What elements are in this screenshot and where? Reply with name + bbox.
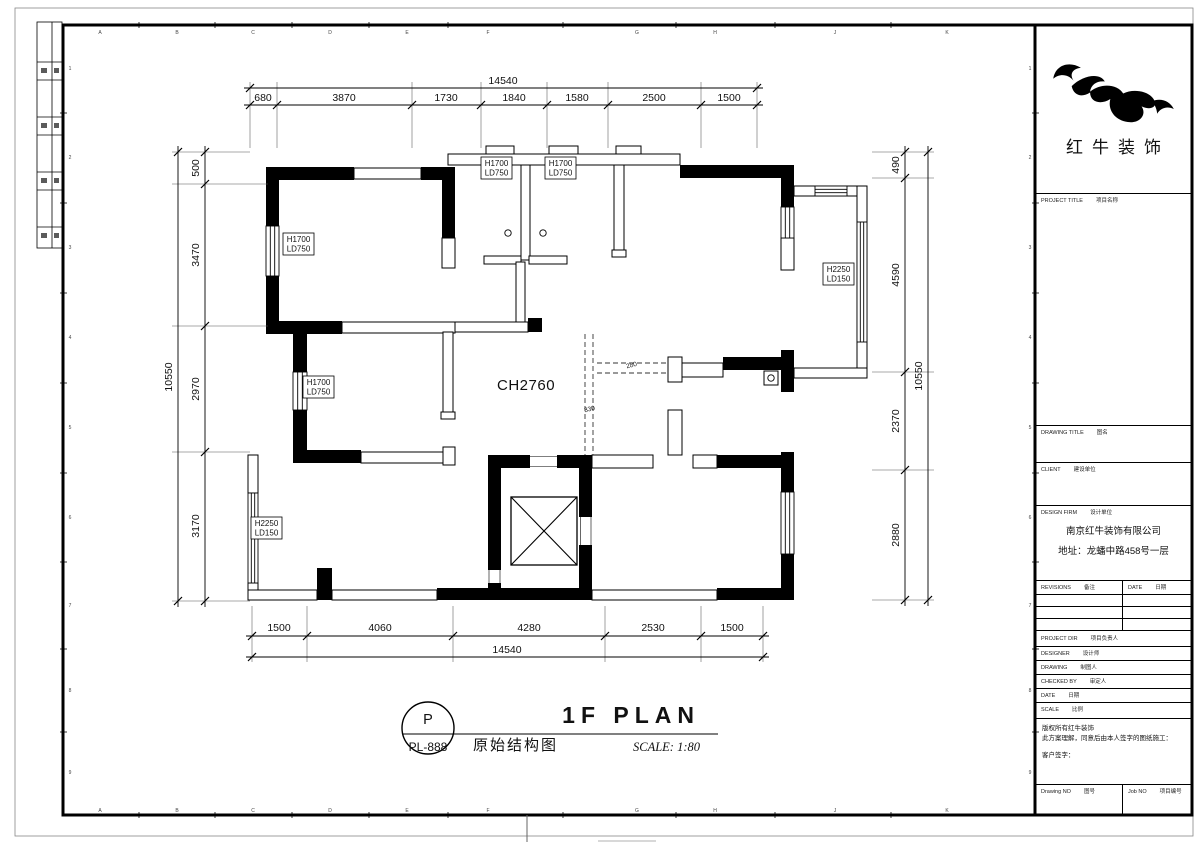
grid-number: 5 bbox=[69, 425, 72, 431]
window bbox=[815, 186, 847, 196]
pipe-circle bbox=[505, 230, 511, 236]
plan-scale: SCALE: 1:80 bbox=[633, 740, 701, 754]
row-checked-by: CHECKED BY 审定人 bbox=[1041, 677, 1190, 685]
row-label-en: CHECKED BY bbox=[1041, 679, 1077, 685]
dim-top: 14540 680 3870 1730 1840 1580 2500 1500 bbox=[244, 75, 763, 109]
dim-seg: 2530 bbox=[641, 622, 665, 634]
grid-number: 9 bbox=[1029, 770, 1032, 776]
window-label: H2250 LD150 bbox=[823, 263, 854, 285]
dim-seg: 1840 bbox=[502, 92, 526, 104]
revisions-zh: 备注 bbox=[1084, 583, 1095, 591]
dim-seg: 680 bbox=[254, 92, 272, 104]
grid-letter: F bbox=[486, 30, 489, 36]
window-label-line2: LD750 bbox=[307, 388, 331, 397]
window-label-line1: H1700 bbox=[307, 378, 331, 387]
dim-seg: 500 bbox=[190, 159, 202, 177]
grid-letter: F bbox=[486, 808, 489, 814]
dim-seg: 3470 bbox=[190, 243, 202, 267]
revisions-en: REVISIONS bbox=[1041, 585, 1071, 591]
grid-letter: C bbox=[251, 30, 255, 36]
window bbox=[857, 222, 867, 342]
window-label-line2: LD150 bbox=[827, 275, 851, 284]
client-header: CLIENT 建设单位 bbox=[1041, 465, 1190, 473]
grid-letter: A bbox=[98, 30, 102, 36]
sheet-frame bbox=[63, 25, 1192, 815]
pipe-circle bbox=[768, 375, 774, 381]
project-title-header: PROJECT TITLE 项目名称 bbox=[1041, 196, 1190, 204]
revisions-header: REVISIONS 备注 bbox=[1041, 583, 1121, 591]
design-firm-en: DESIGN FIRM bbox=[1041, 510, 1077, 516]
row-label-zh: 比例 bbox=[1072, 705, 1083, 713]
dim-seg: 4060 bbox=[368, 622, 392, 634]
bubble-code: PL-888 bbox=[409, 740, 448, 754]
window-labels: H1700 LD750 H1700 LD750 H2250 LD150 H225… bbox=[251, 157, 854, 539]
countersign-strip bbox=[37, 22, 62, 248]
job-no-en: Job NO bbox=[1128, 789, 1147, 795]
grid-letter: H bbox=[713, 808, 717, 814]
dim-seg: 3870 bbox=[332, 92, 356, 104]
grid-number: 4 bbox=[1029, 335, 1032, 341]
grid-number: 8 bbox=[69, 688, 72, 694]
drawing-title-en: DRAWING TITLE bbox=[1041, 430, 1084, 436]
client-en: CLIENT bbox=[1041, 467, 1061, 473]
window-label-line1: H1700 bbox=[549, 159, 573, 168]
pipe-circle bbox=[540, 230, 546, 236]
grid-number: 4 bbox=[69, 335, 72, 341]
grid-letter: D bbox=[328, 30, 332, 36]
dim-seg: 3170 bbox=[190, 514, 202, 538]
window bbox=[781, 207, 794, 238]
row-label-en: SCALE bbox=[1041, 707, 1059, 713]
revisions-date-header: DATE 日期 bbox=[1128, 583, 1190, 591]
row-label-zh: 日期 bbox=[1068, 691, 1079, 699]
dim-seg: 1500 bbox=[720, 622, 744, 634]
dim-seg: 4280 bbox=[517, 622, 541, 634]
dim-total: 14540 bbox=[492, 644, 521, 656]
dim-seg: 1500 bbox=[267, 622, 291, 634]
beam-label: 330 bbox=[584, 405, 597, 415]
design-firm-header: DESIGN FIRM 设计单位 bbox=[1041, 508, 1190, 516]
grid-number: 2 bbox=[69, 155, 72, 161]
project-title-en: PROJECT TITLE bbox=[1041, 198, 1083, 204]
window-label: H1700 LD750 bbox=[481, 157, 512, 179]
grid-number: 7 bbox=[1029, 603, 1032, 609]
row-designer: DESIGNER 设计师 bbox=[1041, 649, 1190, 657]
plan-subtitle: 原始结构图 bbox=[473, 737, 558, 754]
grid-number: 3 bbox=[69, 245, 72, 251]
elevator-shaft bbox=[489, 457, 591, 584]
grid-number: 9 bbox=[69, 770, 72, 776]
grid-letter: H bbox=[713, 30, 717, 36]
grid-letter: B bbox=[175, 30, 179, 36]
window bbox=[781, 492, 794, 554]
job-no-zh: 项目编号 bbox=[1160, 787, 1182, 795]
job-no-cell: Job NO 项目编号 bbox=[1128, 787, 1190, 795]
client-zh: 建设单位 bbox=[1074, 465, 1096, 473]
dim-seg: 1500 bbox=[717, 92, 741, 104]
dim-seg: 2880 bbox=[890, 523, 902, 547]
grid-letter: K bbox=[945, 30, 949, 36]
title-block: 红牛装饰 PROJECT TITLE 项目名称 DRAWING TITLE 图名… bbox=[1035, 25, 1192, 815]
grid-number: 6 bbox=[1029, 515, 1032, 521]
dim-right: 490 4590 2370 2880 10550 bbox=[890, 146, 932, 606]
grid-letter: E bbox=[405, 808, 409, 814]
drawing-no-en: Drawing NO bbox=[1041, 789, 1071, 795]
row-drawing: DRAWING 制图人 bbox=[1041, 663, 1190, 671]
grid-letter: C bbox=[251, 808, 255, 814]
dim-left: 500 3470 2970 3170 10550 bbox=[163, 146, 209, 607]
dim-seg: 1730 bbox=[434, 92, 458, 104]
window-label: H2250 LD150 bbox=[251, 517, 282, 539]
drawing-title-group: P PL-888 1F PLAN 原始结构图 SCALE: 1:80 bbox=[402, 702, 718, 754]
grid-letter: J bbox=[834, 30, 837, 36]
drawing-no-cell: Drawing NO 图号 bbox=[1041, 787, 1119, 795]
grid-letter: G bbox=[635, 808, 639, 814]
row-date: DATE 日期 bbox=[1041, 691, 1190, 699]
window-label-line1: H1700 bbox=[485, 159, 509, 168]
design-firm-zh: 设计单位 bbox=[1090, 508, 1112, 516]
grid-number: 7 bbox=[69, 603, 72, 609]
customer-signature-label: 客户签字： bbox=[1042, 751, 1188, 761]
company-address: 地址：龙蟠中路458号一层 bbox=[1035, 543, 1192, 557]
dim-seg: 2500 bbox=[642, 92, 666, 104]
grid-number: 1 bbox=[69, 66, 72, 72]
window bbox=[266, 226, 279, 276]
drawing-no-zh: 图号 bbox=[1084, 787, 1095, 795]
grid-letter: K bbox=[945, 808, 949, 814]
drawing-title-header: DRAWING TITLE 图名 bbox=[1041, 428, 1190, 436]
window-label-line2: LD750 bbox=[485, 169, 509, 178]
row-label-zh: 制图人 bbox=[1080, 663, 1097, 671]
window-label: H1700 LD750 bbox=[283, 233, 314, 255]
grid-letter: E bbox=[405, 30, 409, 36]
dim-seg: 2970 bbox=[190, 377, 202, 401]
date-col-en: DATE bbox=[1128, 585, 1142, 591]
row-label-zh: 审定人 bbox=[1090, 677, 1107, 685]
row-label-en: DRAWING bbox=[1041, 665, 1067, 671]
window-label-line2: LD750 bbox=[287, 245, 311, 254]
dim-seg: 1580 bbox=[565, 92, 589, 104]
window-label-line2: LD150 bbox=[255, 529, 279, 538]
grid-number: 3 bbox=[1029, 245, 1032, 251]
row-label-zh: 项目负责人 bbox=[1091, 634, 1119, 642]
grid-letter: A bbox=[98, 808, 102, 814]
project-title-zh: 项目名称 bbox=[1096, 196, 1118, 204]
company-name: 南京红牛装饰有限公司 bbox=[1035, 523, 1192, 537]
dim-total: 14540 bbox=[488, 75, 517, 87]
brand-logo bbox=[1049, 53, 1179, 145]
date-col-zh: 日期 bbox=[1155, 583, 1166, 591]
bull-logo-icon bbox=[1053, 64, 1174, 122]
dim-seg: 4590 bbox=[890, 263, 902, 287]
drawing-sheet: A B C D E F G H J K A B C D E F G H J K bbox=[0, 0, 1200, 843]
grid-number: 6 bbox=[69, 515, 72, 521]
bubble-letter: P bbox=[423, 712, 433, 728]
grid-letter: J bbox=[834, 808, 837, 814]
dim-seg: 2370 bbox=[890, 409, 902, 433]
dim-seg: 490 bbox=[890, 156, 902, 174]
window-label-line1: H2250 bbox=[827, 265, 851, 274]
beam-label: 280 bbox=[626, 361, 639, 371]
row-project-dir: PROJECT DIR 项目负责人 bbox=[1041, 634, 1190, 642]
grid-letter: B bbox=[175, 808, 179, 814]
plan-title: 1F PLAN bbox=[562, 702, 700, 728]
beam-lines: 280 330 bbox=[584, 334, 666, 455]
row-label-zh: 设计师 bbox=[1083, 649, 1100, 657]
dim-total: 10550 bbox=[163, 362, 175, 391]
window-label: H1700 LD750 bbox=[545, 157, 576, 179]
row-scale: SCALE 比例 bbox=[1041, 705, 1190, 713]
grid-number: 8 bbox=[1029, 688, 1032, 694]
copyright-line-1: 版权所有红牛装饰 bbox=[1042, 724, 1188, 734]
dim-total: 10550 bbox=[913, 361, 925, 390]
window-label-line1: H2250 bbox=[255, 519, 279, 528]
grid-number: 2 bbox=[1029, 155, 1032, 161]
brand-name: 红牛装饰 bbox=[1035, 133, 1192, 158]
grid-number: 5 bbox=[1029, 425, 1032, 431]
ceiling-height-label: CH2760 bbox=[497, 377, 555, 394]
floor-plan-canvas: A B C D E F G H J K A B C D E F G H J K bbox=[0, 0, 1200, 843]
row-label-en: PROJECT DIR bbox=[1041, 636, 1078, 642]
window-label: H1700 LD750 bbox=[303, 376, 334, 398]
window-label-line1: H1700 bbox=[287, 235, 311, 244]
copyright-line-2: 此方案理解，同意后由本人签字的图纸施工： bbox=[1042, 734, 1188, 744]
row-label-en: DESIGNER bbox=[1041, 651, 1070, 657]
grid-letter: G bbox=[635, 30, 639, 36]
grid-number: 1 bbox=[1029, 66, 1032, 72]
window-label-line2: LD750 bbox=[549, 169, 573, 178]
drawing-title-zh: 图名 bbox=[1097, 428, 1108, 436]
row-label-en: DATE bbox=[1041, 693, 1055, 699]
dim-bottom: 1500 4060 4280 2530 1500 14540 bbox=[246, 622, 769, 661]
grid-letter: D bbox=[328, 808, 332, 814]
